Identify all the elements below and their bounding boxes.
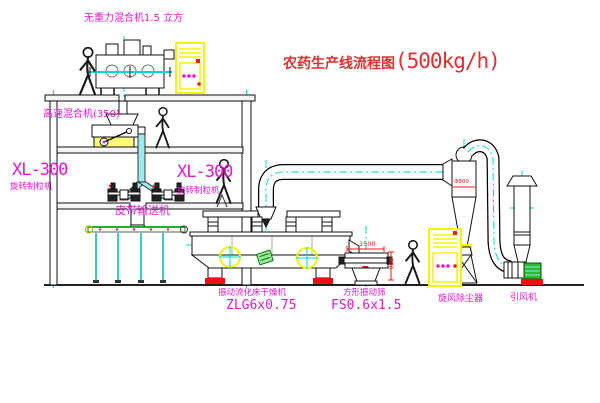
title-capacity: (500kg/h)	[395, 49, 500, 73]
label-gravity-mixer: 无重力混合机1.5 立方	[84, 14, 183, 24]
label-granulator-right-model: XL-300	[177, 164, 232, 181]
belt-conveyor	[86, 226, 188, 283]
dimension-cyclone-dia: Φ800	[454, 180, 469, 186]
exhaust-duct	[266, 159, 452, 207]
label-granulator-left-name: 旋转制粒机	[10, 183, 53, 192]
label-screen-name: 方形振动筛	[343, 289, 386, 298]
label-granulator-right-name: 旋转制粒机	[177, 187, 220, 196]
label-cyclone: 旋风除尘器	[438, 295, 483, 304]
dimension-screen-width: 600	[387, 258, 393, 269]
label-dryer-model: ZLG6x0.75	[226, 299, 296, 312]
dimension-screen-length: 1500	[359, 241, 376, 248]
induced-draft-fan	[504, 262, 543, 285]
label-granulator-left-model: XL-300	[12, 162, 67, 179]
label-high-speed-mixer: 高速混合机(350)	[43, 110, 120, 120]
label-fan: 引风机	[510, 294, 537, 303]
title-text: 农药生产线流程图	[283, 53, 395, 73]
gravity-mixer-machine	[88, 40, 181, 117]
person-floor2	[156, 108, 169, 148]
label-dryer-name: 振动流化床干燥机	[218, 289, 286, 298]
control-cabinet-bottom	[429, 229, 461, 286]
label-screen-model: FS0.6x1.5	[331, 299, 401, 312]
process-flow-diagram: 农药生产线流程图 (500kg/h) 无重力混合机1.5 立方 高速混合机(35…	[0, 0, 600, 403]
control-cabinet-top	[176, 43, 204, 93]
granulator-left	[108, 183, 140, 201]
vibrating-screen	[339, 246, 394, 285]
fluid-bed-dryer	[190, 211, 359, 284]
person-ground	[406, 241, 420, 283]
label-belt-conveyor: 皮带输送机	[115, 205, 170, 216]
diagram-title: 农药生产线流程图 (500kg/h)	[283, 49, 500, 73]
